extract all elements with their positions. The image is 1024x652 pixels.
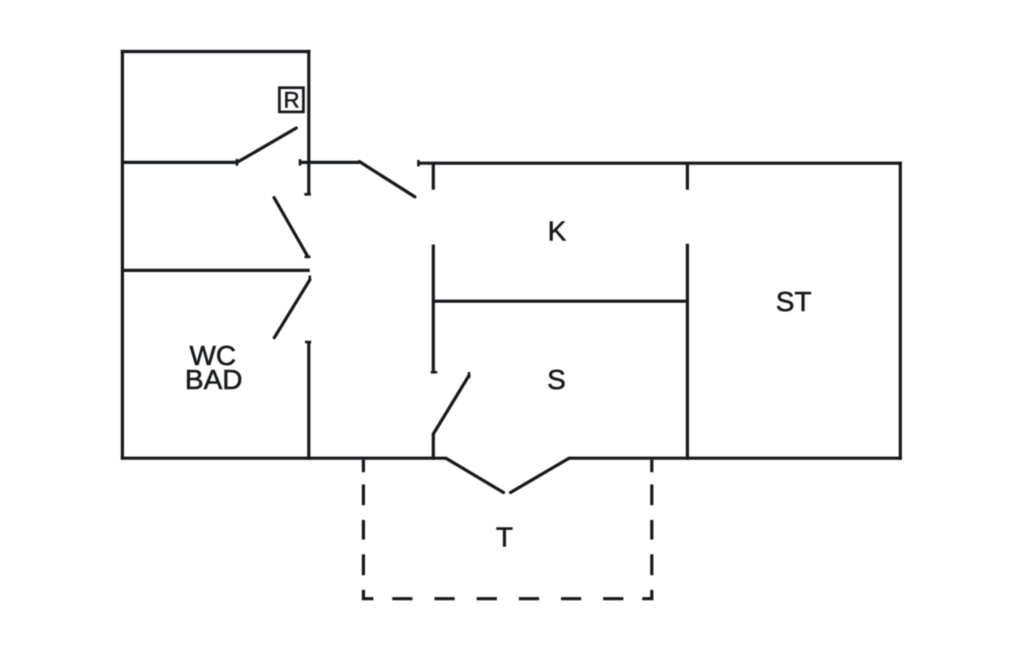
svg-text:BAD: BAD (185, 364, 243, 395)
svg-text:R: R (284, 88, 300, 113)
svg-text:S: S (547, 364, 566, 395)
svg-text:ST: ST (776, 286, 812, 317)
svg-text:T: T (496, 521, 513, 552)
svg-text:K: K (548, 216, 567, 247)
